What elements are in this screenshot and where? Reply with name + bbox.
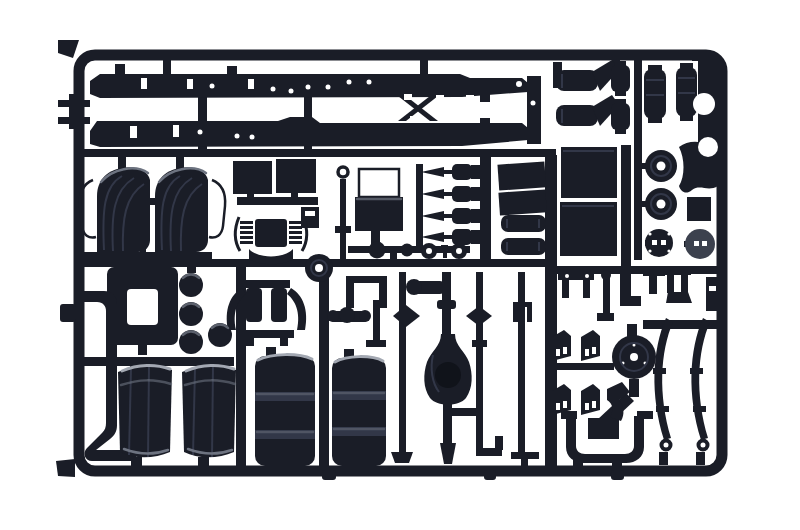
photo-of-model-kit-sprue (0, 0, 800, 530)
sprue-illustration (0, 0, 800, 530)
fuel-tank-right (332, 358, 386, 466)
top-right-tab (692, 50, 710, 61)
fuel-tank-left (255, 356, 315, 466)
